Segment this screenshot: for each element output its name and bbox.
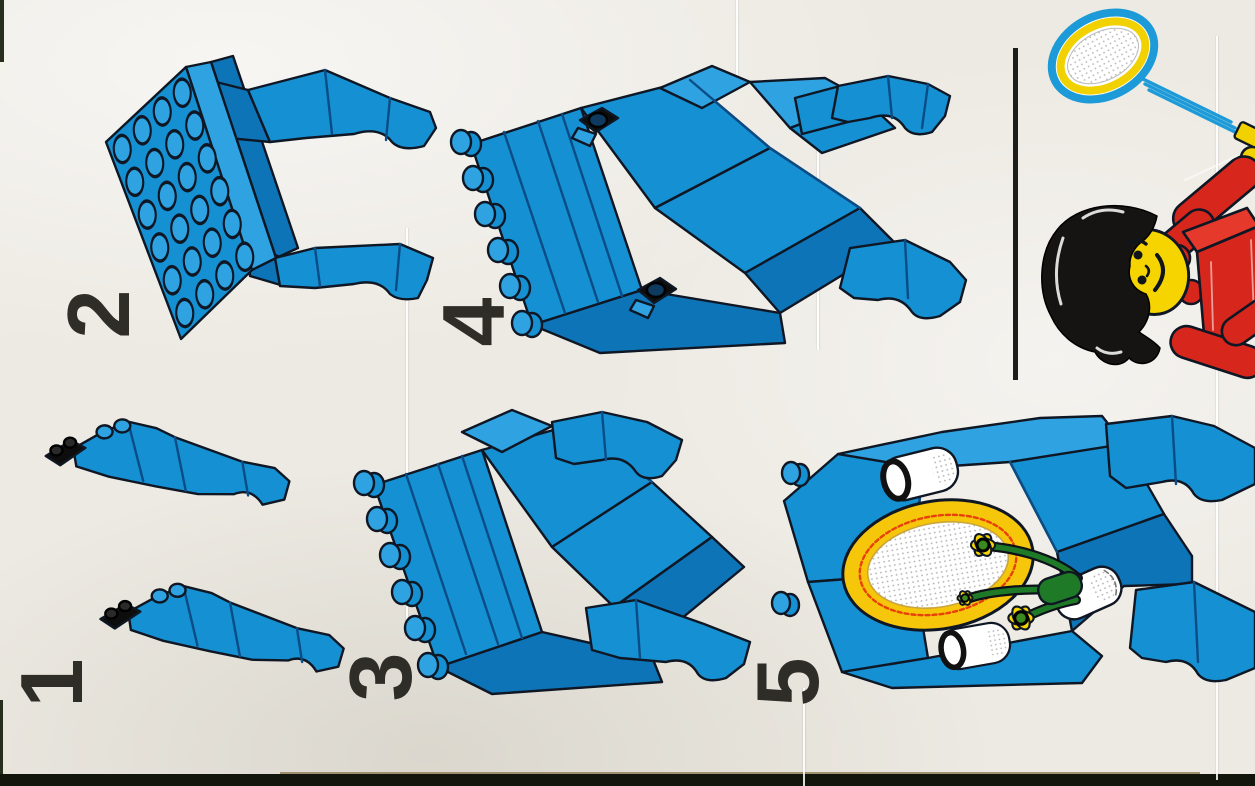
step-5-top-leg [1106,416,1255,501]
step-4-assembly-illustration [450,58,970,363]
scan-edge-left-top [0,0,4,62]
step-1-number-label: 1 [2,634,102,734]
step-1-piece-upper [44,411,291,516]
step-2-parts [106,56,436,339]
flower-2 [1008,604,1033,633]
step-5-parts [772,416,1255,688]
scan-edge-bottom [0,774,1255,786]
lego-figure [1042,147,1255,382]
step-5-number-label: 5 [738,633,838,733]
tennis-racket-icon [1037,0,1255,156]
step-2-number-label: 2 [49,265,149,365]
step-5-bottom-leg [1130,582,1255,681]
step-2-assembly-illustration [100,58,445,353]
divider-rule [1013,48,1018,380]
corner-illustration [1005,0,1255,400]
step-2-bottom-leg [275,244,433,299]
step-4-bottom-leg [840,240,966,318]
step-5-assembly-illustration [772,406,1255,714]
instruction-sheet-page: 2 [0,0,1255,786]
step-4-parts [451,66,966,353]
step-1-piece-lower [99,578,344,679]
flower-3 [958,590,973,607]
step-4-number-label: 4 [424,273,524,373]
step-3-number-label: 3 [331,628,431,728]
step-2-top-leg [248,70,436,148]
